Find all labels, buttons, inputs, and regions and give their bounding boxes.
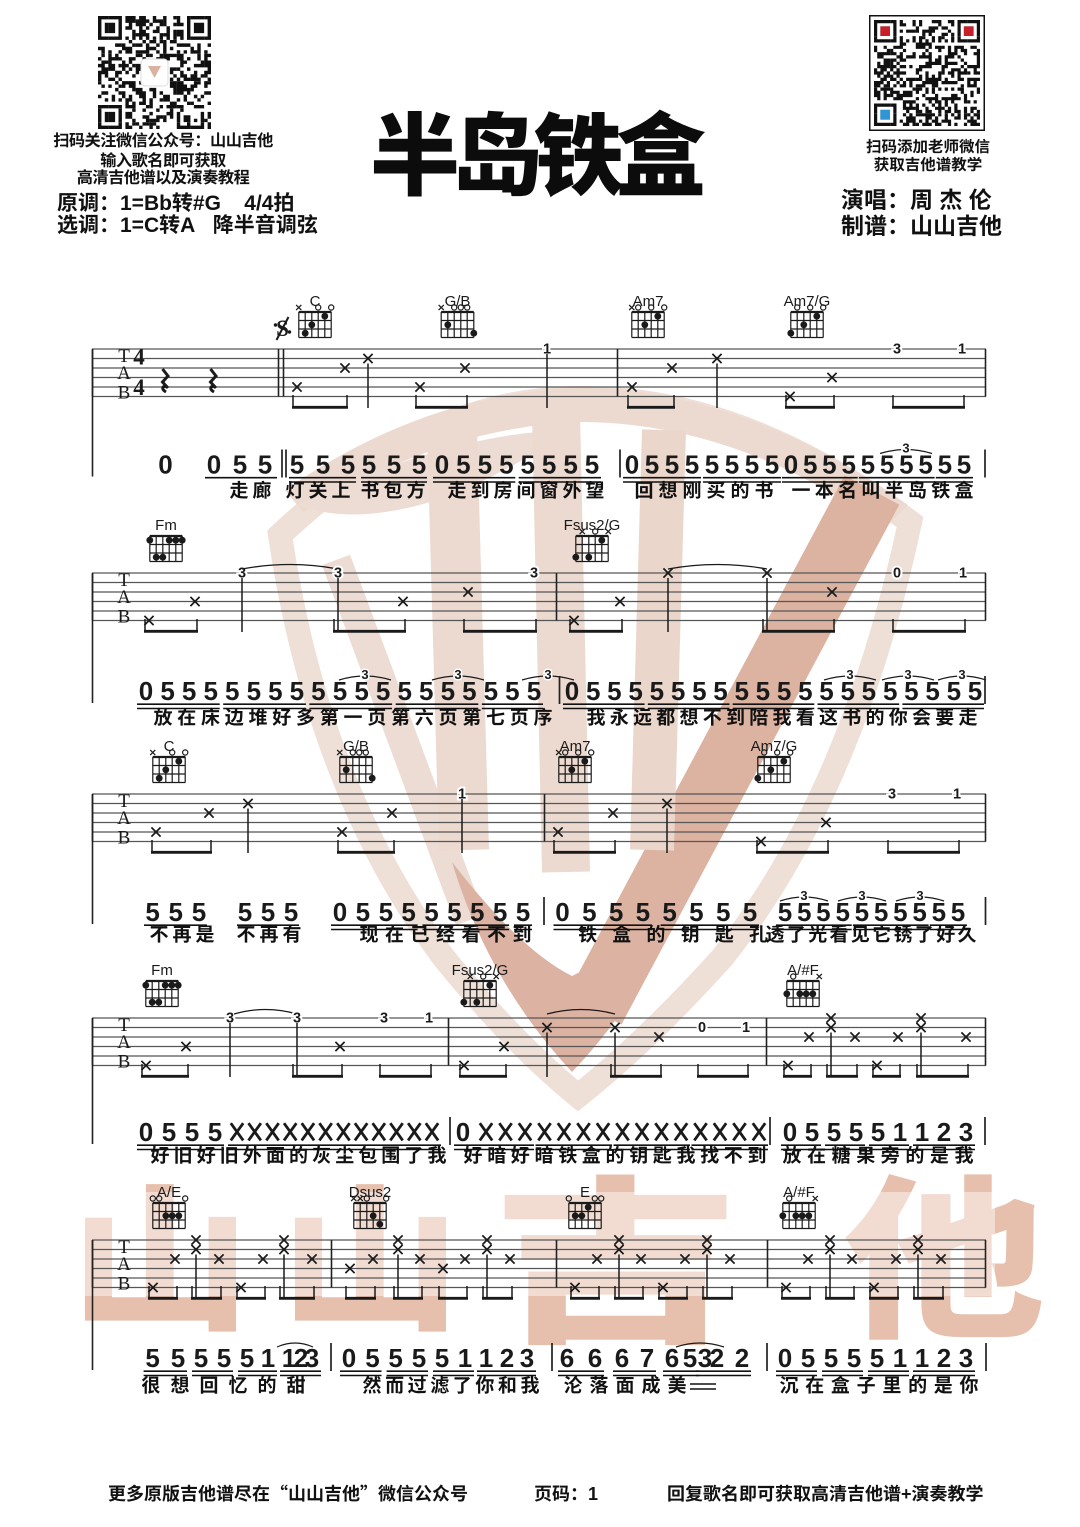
svg-text:5: 5	[841, 450, 855, 480]
svg-text:5: 5	[756, 676, 770, 706]
svg-text:廊: 廊	[252, 476, 271, 503]
svg-text:5: 5	[880, 450, 894, 480]
svg-text:第: 第	[462, 703, 481, 730]
svg-text:面: 面	[615, 1371, 634, 1398]
svg-text:Fsus2/G: Fsus2/G	[564, 517, 621, 534]
svg-text:了: 了	[915, 920, 934, 947]
svg-text:5: 5	[247, 676, 261, 706]
svg-text:2: 2	[937, 1343, 951, 1373]
svg-text:面: 面	[266, 1141, 285, 1168]
svg-text:4: 4	[133, 375, 145, 400]
svg-text:书: 书	[754, 476, 773, 503]
svg-text:5: 5	[505, 676, 519, 706]
svg-text:5: 5	[586, 676, 600, 706]
svg-text:锈: 锈	[893, 920, 912, 947]
svg-text:A/#F: A/#F	[787, 962, 819, 979]
svg-text:5: 5	[918, 450, 932, 480]
svg-text:3: 3	[916, 888, 923, 903]
svg-text:望: 望	[585, 476, 604, 503]
svg-text:5: 5	[650, 676, 664, 706]
svg-text:岛: 岛	[908, 476, 927, 503]
svg-text:5: 5	[412, 450, 426, 480]
svg-text:0: 0	[158, 450, 172, 480]
svg-text:很: 很	[141, 1371, 160, 1398]
svg-text:5: 5	[376, 676, 390, 706]
svg-text:5: 5	[870, 1343, 884, 1373]
svg-text:是: 是	[195, 920, 214, 947]
svg-text:5: 5	[441, 676, 455, 706]
svg-text:1: 1	[261, 1343, 275, 1373]
svg-text:5: 5	[194, 1343, 208, 1373]
svg-text:5: 5	[803, 450, 817, 480]
svg-text:1: 1	[893, 1343, 907, 1373]
svg-text:果: 果	[856, 1141, 875, 1168]
svg-text:Fm: Fm	[155, 517, 177, 534]
svg-text:B: B	[118, 607, 131, 628]
svg-text:好: 好	[197, 1141, 216, 1168]
svg-text:Fsus2/G: Fsus2/G	[452, 962, 509, 979]
svg-text:4: 4	[133, 345, 145, 370]
svg-text:到: 到	[747, 1141, 766, 1168]
svg-text:Dsus2: Dsus2	[349, 1184, 392, 1201]
svg-text:包: 包	[383, 476, 402, 503]
svg-text:B: B	[118, 828, 131, 849]
svg-text:方: 方	[406, 476, 425, 503]
svg-text:的: 的	[908, 1371, 927, 1398]
svg-text:5: 5	[968, 676, 982, 706]
svg-text:七: 七	[486, 703, 505, 730]
svg-text:3: 3	[846, 667, 853, 682]
svg-text:5: 5	[268, 676, 282, 706]
svg-text:光: 光	[808, 920, 827, 947]
svg-text:页: 页	[510, 703, 529, 730]
svg-text:一: 一	[343, 703, 362, 730]
svg-text:盒: 盒	[582, 1141, 601, 1168]
svg-text:我: 我	[676, 1141, 695, 1168]
svg-text:0: 0	[207, 450, 221, 480]
svg-text:0: 0	[565, 676, 579, 706]
svg-text:1: 1	[915, 1343, 929, 1373]
svg-text:滤: 滤	[430, 1371, 449, 1398]
svg-text:到: 到	[470, 476, 489, 503]
svg-text:是: 是	[934, 1371, 953, 1398]
svg-text:2: 2	[500, 1343, 514, 1373]
svg-text:的: 的	[257, 1371, 276, 1398]
svg-text:5: 5	[645, 450, 659, 480]
svg-text:陪: 陪	[749, 703, 768, 730]
svg-text:经: 经	[436, 920, 455, 947]
svg-text:5: 5	[160, 676, 174, 706]
svg-text:放: 放	[782, 1141, 801, 1168]
svg-text:5: 5	[607, 676, 621, 706]
svg-text:5: 5	[765, 450, 779, 480]
svg-text:甜: 甜	[286, 1371, 305, 1398]
svg-text:A: A	[117, 1254, 131, 1275]
svg-text:回: 回	[634, 476, 653, 503]
svg-text:Am7/G: Am7/G	[751, 738, 798, 755]
svg-text:3: 3	[361, 667, 368, 682]
svg-text:间: 间	[516, 476, 535, 503]
svg-text:5: 5	[462, 676, 476, 706]
svg-text:5: 5	[435, 1343, 449, 1373]
svg-text:好: 好	[150, 1141, 169, 1168]
svg-text:铁: 铁	[558, 1141, 577, 1168]
svg-text:好: 好	[511, 1141, 530, 1168]
svg-text:你: 你	[959, 1371, 978, 1398]
svg-text:落: 落	[589, 1371, 608, 1398]
svg-text:暗: 暗	[534, 1141, 553, 1168]
svg-text:我: 我	[586, 703, 605, 730]
svg-text:看: 看	[461, 920, 480, 947]
svg-text:2: 2	[735, 1343, 749, 1373]
svg-text:第: 第	[320, 703, 339, 730]
svg-text:1: 1	[953, 787, 961, 803]
svg-text:5: 5	[258, 450, 272, 480]
svg-text:旁: 旁	[881, 1141, 900, 1168]
svg-text:了: 了	[404, 1141, 423, 1168]
svg-text:堆: 堆	[248, 703, 267, 730]
svg-text:5: 5	[847, 1343, 861, 1373]
svg-text:灰: 灰	[312, 1141, 331, 1168]
svg-text:糖: 糖	[832, 1141, 851, 1168]
svg-text:5: 5	[484, 676, 498, 706]
svg-text:B: B	[118, 383, 131, 404]
svg-text:5: 5	[388, 1343, 402, 1373]
svg-text:3: 3	[520, 1343, 534, 1373]
svg-text:A: A	[117, 363, 131, 384]
svg-text:围: 围	[381, 1141, 400, 1168]
svg-text:旧: 旧	[220, 1141, 239, 1168]
svg-text:Am7/G: Am7/G	[784, 293, 831, 310]
svg-text:想: 想	[679, 703, 698, 730]
svg-text:到: 到	[726, 703, 745, 730]
svg-text:钥: 钥	[629, 1141, 648, 1168]
svg-text:盒: 盒	[954, 476, 973, 503]
svg-text:0: 0	[625, 450, 639, 480]
svg-text:1: 1	[959, 566, 967, 582]
svg-text:A/E: A/E	[157, 1184, 181, 1201]
svg-text:E: E	[580, 1184, 590, 1201]
svg-text:2: 2	[710, 1343, 724, 1373]
svg-text:5: 5	[171, 1343, 185, 1373]
svg-text:B: B	[118, 1274, 131, 1295]
svg-text:0: 0	[342, 1343, 356, 1373]
svg-text:要: 要	[935, 703, 954, 730]
svg-text:而: 而	[385, 1371, 404, 1398]
svg-text:刚: 刚	[682, 476, 701, 503]
svg-text:里: 里	[882, 1371, 901, 1398]
svg-text:再: 再	[172, 920, 191, 947]
svg-text:床: 床	[201, 703, 220, 730]
svg-text:G/B: G/B	[343, 738, 369, 755]
svg-text:3: 3	[800, 888, 807, 903]
svg-text:5: 5	[333, 676, 347, 706]
svg-text:子: 子	[857, 1371, 876, 1398]
svg-text:的: 的	[905, 1141, 924, 1168]
svg-text:3: 3	[858, 888, 865, 903]
svg-text:是: 是	[930, 1141, 949, 1168]
svg-text:沦: 沦	[563, 1371, 582, 1398]
svg-text:1: 1	[425, 1011, 433, 1027]
svg-text:忆: 忆	[228, 1371, 247, 1398]
svg-text:5: 5	[713, 676, 727, 706]
svg-text:5: 5	[861, 450, 875, 480]
svg-text:5: 5	[362, 450, 376, 480]
svg-text:5: 5	[745, 450, 759, 480]
svg-text:5: 5	[478, 450, 492, 480]
svg-text:5: 5	[665, 450, 679, 480]
svg-text:5: 5	[725, 450, 739, 480]
svg-text:边: 边	[225, 703, 244, 730]
svg-text:6: 6	[665, 1343, 679, 1373]
svg-text:5: 5	[341, 450, 355, 480]
svg-text:A: A	[117, 1032, 131, 1053]
svg-text:5: 5	[290, 450, 304, 480]
svg-text:窗: 窗	[539, 476, 558, 503]
svg-text:0: 0	[778, 1343, 792, 1373]
svg-text:3: 3	[530, 566, 538, 582]
svg-text:钥: 钥	[681, 920, 700, 947]
svg-text:3: 3	[959, 1343, 973, 1373]
svg-text:的: 的	[646, 920, 665, 947]
svg-text:过: 过	[408, 1371, 427, 1398]
svg-text:页: 页	[438, 703, 457, 730]
svg-text:再: 再	[259, 920, 278, 947]
svg-text:5: 5	[203, 676, 217, 706]
svg-text:5: 5	[456, 450, 470, 480]
svg-text:5: 5	[527, 676, 541, 706]
svg-text:尘: 尘	[335, 1141, 354, 1168]
svg-text:六: 六	[415, 703, 434, 730]
svg-text:不: 不	[149, 920, 168, 947]
svg-text:5: 5	[777, 676, 791, 706]
svg-text:走: 走	[229, 476, 248, 503]
svg-text:叫: 叫	[861, 476, 880, 503]
svg-text:5: 5	[734, 676, 748, 706]
svg-text:序: 序	[533, 703, 552, 730]
svg-text:0: 0	[555, 897, 569, 927]
svg-text:5: 5	[182, 676, 196, 706]
svg-text:5: 5	[419, 676, 433, 706]
svg-text:你: 你	[889, 703, 908, 730]
svg-text:这: 这	[819, 703, 838, 730]
svg-text:1: 1	[958, 342, 966, 358]
svg-text:不: 不	[236, 920, 255, 947]
svg-text:成: 成	[641, 1371, 660, 1398]
svg-text:5: 5	[240, 1343, 254, 1373]
svg-text:回: 回	[199, 1371, 218, 1398]
svg-text:书: 书	[360, 476, 379, 503]
svg-text:见: 见	[851, 920, 870, 947]
svg-text:会: 会	[912, 703, 931, 730]
svg-text:5: 5	[824, 1343, 838, 1373]
svg-text:想: 想	[170, 1371, 189, 1398]
svg-text:5: 5	[499, 450, 513, 480]
svg-text:5: 5	[233, 450, 247, 480]
svg-text:G/B: G/B	[445, 293, 471, 310]
svg-text:A: A	[117, 587, 131, 608]
svg-text:到: 到	[512, 920, 531, 947]
svg-text:的: 的	[730, 476, 749, 503]
svg-text:A: A	[117, 808, 131, 829]
svg-text:0: 0	[333, 897, 347, 927]
svg-text:在: 在	[385, 920, 404, 947]
svg-text:的: 的	[289, 1141, 308, 1168]
svg-text:5: 5	[683, 1343, 697, 1373]
svg-text:在: 在	[805, 1371, 824, 1398]
svg-text:好: 好	[936, 920, 955, 947]
svg-text:放: 放	[153, 703, 172, 730]
svg-text:5: 5	[628, 676, 642, 706]
svg-text:了: 了	[787, 920, 806, 947]
svg-text:页: 页	[367, 703, 386, 730]
svg-text:B: B	[118, 1052, 131, 1073]
svg-text:半: 半	[885, 476, 904, 503]
svg-text:5: 5	[798, 676, 812, 706]
svg-text:5: 5	[225, 676, 239, 706]
svg-text:多: 多	[296, 703, 315, 730]
svg-text:我: 我	[954, 1141, 973, 1168]
svg-text:Fm: Fm	[151, 962, 173, 979]
svg-text:在: 在	[177, 703, 196, 730]
svg-text:匙: 匙	[715, 920, 734, 947]
svg-text:0: 0	[698, 1020, 706, 1036]
svg-text:5: 5	[387, 450, 401, 480]
svg-text:6: 6	[560, 1343, 574, 1373]
svg-text:的: 的	[865, 703, 884, 730]
svg-text:看: 看	[796, 703, 815, 730]
svg-text:5: 5	[311, 676, 325, 706]
svg-text:6: 6	[615, 1343, 629, 1373]
svg-text:6: 6	[588, 1343, 602, 1373]
svg-text:5: 5	[365, 1343, 379, 1373]
svg-text:看: 看	[829, 920, 848, 947]
svg-text:它: 它	[872, 920, 891, 947]
svg-text:A/#F: A/#F	[783, 1184, 815, 1201]
svg-text:书: 书	[842, 703, 861, 730]
svg-text:1: 1	[479, 1343, 493, 1373]
svg-text:沉: 沉	[779, 1371, 798, 1398]
svg-text:了: 了	[453, 1371, 472, 1398]
svg-text:5: 5	[925, 676, 939, 706]
svg-text:Am7: Am7	[633, 293, 664, 310]
svg-text:5: 5	[145, 1343, 159, 1373]
svg-text:想: 想	[658, 476, 677, 503]
svg-text:Am7: Am7	[560, 738, 591, 755]
svg-text:3: 3	[380, 1011, 388, 1027]
svg-text:3: 3	[305, 1343, 319, 1373]
svg-text:有: 有	[282, 920, 301, 947]
svg-text:5: 5	[822, 450, 836, 480]
svg-text:3: 3	[893, 342, 901, 358]
svg-text:已: 已	[410, 920, 429, 947]
svg-text:灯: 灯	[285, 476, 304, 503]
svg-text:0: 0	[784, 450, 798, 480]
svg-text:盒: 盒	[831, 1371, 850, 1398]
svg-text:5: 5	[563, 450, 577, 480]
svg-text:你: 你	[475, 1371, 494, 1398]
svg-text:好: 好	[272, 703, 291, 730]
svg-text:0: 0	[139, 676, 153, 706]
svg-text:买: 买	[706, 476, 725, 503]
svg-text:美: 美	[667, 1371, 686, 1398]
svg-text:包: 包	[358, 1141, 377, 1168]
svg-text:远: 远	[633, 703, 652, 730]
svg-text:本: 本	[815, 476, 834, 503]
svg-text:3: 3	[544, 667, 551, 682]
svg-text:5: 5	[397, 676, 411, 706]
svg-text:我: 我	[427, 1141, 446, 1168]
svg-text:名: 名	[838, 476, 857, 503]
svg-text:0: 0	[435, 450, 449, 480]
svg-text:5: 5	[217, 1343, 231, 1373]
svg-text:5: 5	[705, 450, 719, 480]
svg-text:5: 5	[585, 450, 599, 480]
svg-text:7: 7	[640, 1343, 654, 1373]
svg-text:5: 5	[685, 450, 699, 480]
svg-text:我: 我	[772, 703, 791, 730]
svg-text:5: 5	[412, 1343, 426, 1373]
svg-text:我: 我	[520, 1371, 539, 1398]
svg-text:不: 不	[703, 703, 722, 730]
svg-text:5: 5	[542, 450, 556, 480]
svg-text:上: 上	[331, 476, 350, 503]
svg-text:暗: 暗	[487, 1141, 506, 1168]
svg-text:铁: 铁	[931, 476, 950, 503]
svg-text:透: 透	[765, 920, 784, 947]
svg-text:久: 久	[957, 920, 976, 947]
svg-text:3: 3	[902, 441, 909, 456]
svg-text:第: 第	[391, 703, 410, 730]
svg-text:5: 5	[883, 676, 897, 706]
svg-text:5: 5	[862, 676, 876, 706]
svg-text:1: 1	[458, 1343, 472, 1373]
svg-text:找: 找	[700, 1141, 719, 1168]
svg-text:在: 在	[807, 1141, 826, 1168]
svg-text:匙: 匙	[653, 1141, 672, 1168]
svg-text:的: 的	[605, 1141, 624, 1168]
svg-text:永: 永	[610, 703, 629, 730]
svg-text:好: 好	[463, 1141, 482, 1168]
svg-text:5: 5	[938, 450, 952, 480]
svg-text:走: 走	[958, 703, 977, 730]
svg-text:房: 房	[493, 476, 512, 503]
svg-text:5: 5	[671, 676, 685, 706]
svg-text:3: 3	[454, 667, 461, 682]
svg-text:5: 5	[801, 1343, 815, 1373]
svg-text:都: 都	[656, 703, 675, 730]
svg-text:旧: 旧	[174, 1141, 193, 1168]
svg-text:5: 5	[290, 676, 304, 706]
svg-text:5: 5	[957, 450, 971, 480]
svg-text:走: 走	[447, 476, 466, 503]
svg-text:不: 不	[724, 1141, 743, 1168]
svg-text:3: 3	[888, 787, 896, 803]
svg-text:3: 3	[958, 667, 965, 682]
svg-text:一: 一	[791, 476, 810, 503]
svg-text:1: 1	[742, 1020, 750, 1036]
svg-text:然: 然	[362, 1371, 381, 1398]
svg-text:3: 3	[904, 667, 911, 682]
svg-text:盒: 盒	[612, 920, 631, 947]
svg-text:不: 不	[487, 920, 506, 947]
svg-text:外: 外	[562, 476, 581, 503]
svg-text:5: 5	[692, 676, 706, 706]
svg-text:5: 5	[819, 676, 833, 706]
svg-text:铁: 铁	[578, 920, 597, 947]
svg-text:5: 5	[520, 450, 534, 480]
svg-text:现: 现	[359, 920, 378, 947]
